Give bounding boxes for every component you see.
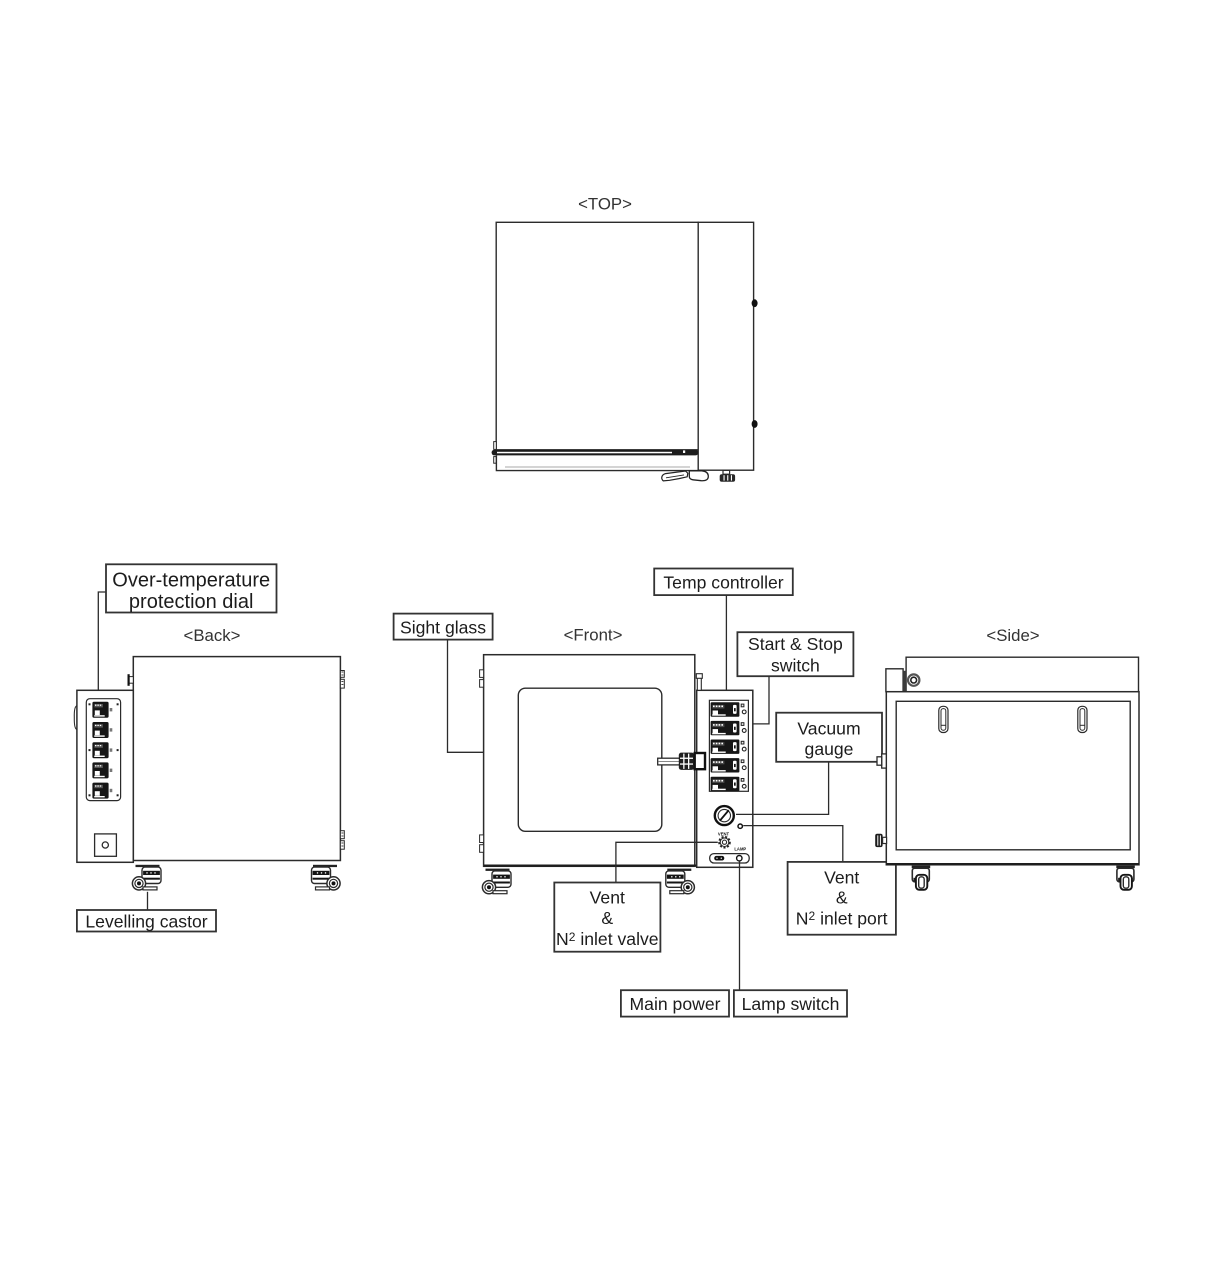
svg-text:Temp controller: Temp controller <box>663 573 783 593</box>
svg-text:<Front>: <Front> <box>564 625 623 644</box>
svg-text:Vent: Vent <box>590 887 625 907</box>
svg-text:Vacuum: Vacuum <box>797 718 860 738</box>
svg-text:LAMP: LAMP <box>734 846 746 851</box>
svg-text:Start & Stop: Start & Stop <box>748 634 843 654</box>
svg-text:Over-temperature: Over-temperature <box>112 570 270 592</box>
svg-text:Sight glass: Sight glass <box>400 617 486 637</box>
svg-text:&: & <box>836 888 848 908</box>
svg-text:<TOP>: <TOP> <box>578 195 632 214</box>
svg-text:Main power: Main power <box>630 994 721 1014</box>
svg-text:Vent: Vent <box>824 868 859 888</box>
svg-text:Levelling castor: Levelling castor <box>85 911 207 931</box>
svg-text:&: & <box>601 908 613 928</box>
svg-text:<Back>: <Back> <box>184 626 241 645</box>
svg-text:gauge: gauge <box>805 739 854 759</box>
svg-text:switch: switch <box>771 655 820 675</box>
svg-text:Lamp switch: Lamp switch <box>742 994 840 1014</box>
svg-text:<Side>: <Side> <box>986 626 1039 645</box>
svg-text:VENT: VENT <box>718 831 730 836</box>
svg-text:protection dial: protection dial <box>129 591 254 613</box>
